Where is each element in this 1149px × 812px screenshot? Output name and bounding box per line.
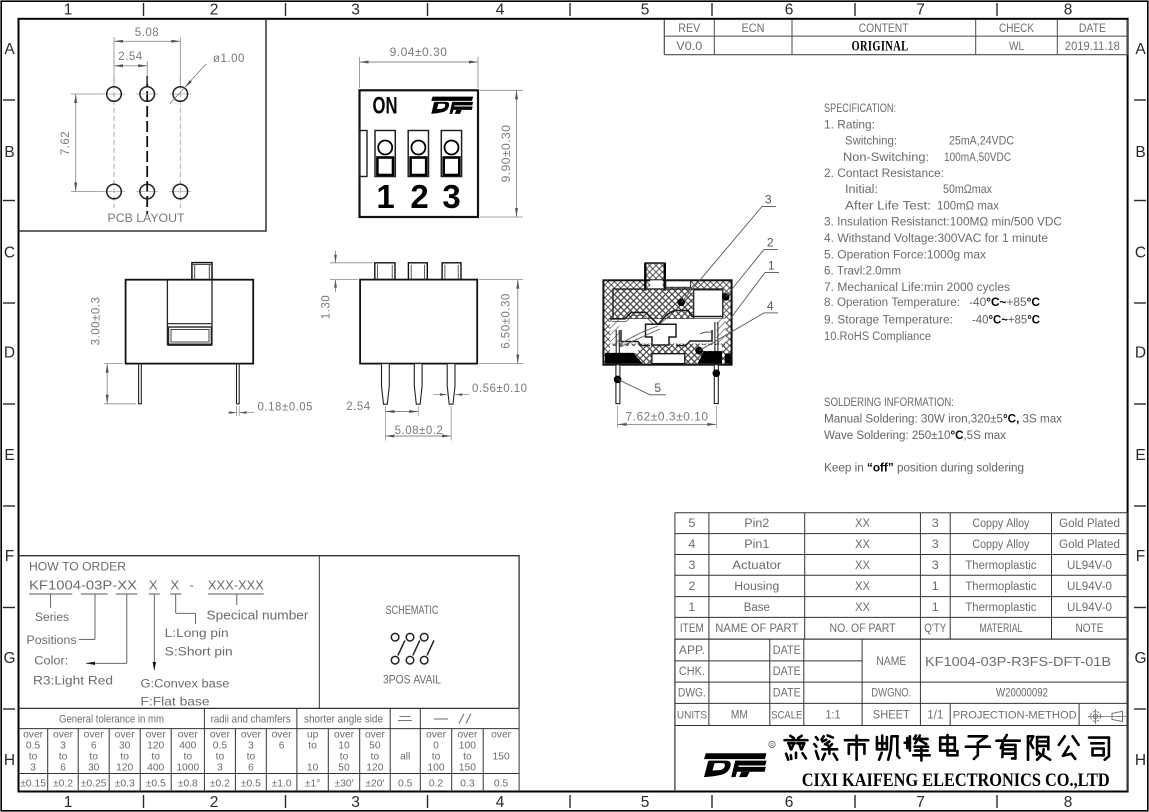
svg-text:5.08±0.2: 5.08±0.2: [395, 425, 444, 437]
svg-text:100: 100: [459, 741, 476, 752]
svg-text:Coppy Alloy: Coppy Alloy: [972, 539, 1029, 551]
svg-text:SCHEMATIC: SCHEMATIC: [386, 603, 439, 617]
svg-text:C: C: [4, 245, 15, 262]
svg-text:DATE: DATE: [773, 688, 801, 700]
svg-text:3. Insulation Resistanct:100MΩ: 3. Insulation Resistanct:100MΩ min/500 V…: [824, 215, 1062, 229]
svg-text:1: 1: [376, 178, 394, 215]
svg-text:4: 4: [688, 539, 696, 551]
svg-text:to: to: [59, 752, 68, 763]
svg-text:4: 4: [767, 299, 774, 313]
svg-text:±30′: ±30′: [334, 779, 353, 790]
svg-text:Actuator: Actuator: [732, 560, 781, 572]
svg-text:Gold Plated: Gold Plated: [1059, 539, 1120, 551]
svg-text:1: 1: [932, 581, 939, 593]
svg-text:Thermoplastic: Thermoplastic: [965, 602, 1036, 614]
svg-text:5.08: 5.08: [135, 27, 159, 39]
svg-text:General tolerance in mm: General tolerance in mm: [59, 714, 164, 726]
svg-text:to: to: [340, 752, 349, 763]
svg-text:CIXI KAIFENG ELECTRONICS CO.,L: CIXI KAIFENG ELECTRONICS CO.,LTD: [802, 770, 1110, 791]
svg-text:3: 3: [248, 741, 254, 752]
svg-text:over: over: [53, 730, 74, 741]
svg-text:6.50±0.30: 6.50±0.30: [501, 293, 513, 349]
svg-text:to: to: [371, 752, 380, 763]
svg-text:4: 4: [496, 794, 505, 811]
svg-text:Positions: Positions: [27, 633, 77, 647]
svg-text:to: to: [151, 752, 160, 763]
svg-text:10.RoHS Compliance: 10.RoHS Compliance: [824, 329, 931, 343]
svg-text:H: H: [1135, 752, 1146, 769]
svg-text:UL94V-0: UL94V-0: [1067, 560, 1112, 572]
svg-text:Pin2: Pin2: [744, 518, 769, 530]
svg-text:Thermoplastic: Thermoplastic: [965, 560, 1036, 572]
svg-text:over: over: [426, 730, 447, 741]
svg-text:Housing: Housing: [734, 581, 779, 593]
svg-text:Wave Soldering: 250±10°C,5S ma: Wave Soldering: 250±10°C,5S max: [824, 428, 1006, 442]
svg-text:After Life Test:: After Life Test:: [845, 198, 931, 212]
svg-text:to: to: [308, 741, 317, 752]
svg-text:MM: MM: [731, 710, 748, 722]
svg-text:0.2: 0.2: [429, 779, 444, 790]
svg-text:3: 3: [351, 794, 360, 811]
svg-text:C: C: [1135, 245, 1146, 262]
svg-text:6: 6: [785, 794, 794, 811]
svg-text:UL94V-0: UL94V-0: [1067, 602, 1112, 614]
svg-text:to: to: [432, 752, 441, 763]
svg-text:CONTENT: CONTENT: [859, 21, 910, 35]
svg-text:E: E: [4, 447, 14, 464]
svg-text:10: 10: [307, 763, 319, 774]
svg-text:6: 6: [279, 741, 285, 752]
svg-text:6: 6: [91, 741, 97, 752]
svg-text:KF1004-03P-XX: KF1004-03P-XX: [29, 578, 137, 593]
svg-text:5: 5: [688, 518, 695, 530]
svg-text:0.3: 0.3: [460, 779, 475, 790]
svg-text:9. Storage Temperature:: 9. Storage Temperature:: [824, 312, 953, 326]
svg-text:E: E: [1135, 447, 1145, 464]
svg-text:3.00±0.3: 3.00±0.3: [91, 297, 103, 346]
svg-text:over: over: [115, 730, 136, 741]
svg-text:UNITS: UNITS: [677, 710, 707, 722]
svg-text:to: to: [463, 752, 472, 763]
svg-text:W20000092: W20000092: [996, 686, 1048, 700]
svg-text:XX: XX: [855, 602, 870, 614]
svg-text:3: 3: [60, 741, 66, 752]
svg-text:3: 3: [765, 193, 772, 207]
svg-text:±0.2: ±0.2: [210, 779, 230, 790]
svg-text:6: 6: [60, 763, 66, 774]
svg-text:8: 8: [1064, 2, 1073, 19]
svg-text:3: 3: [688, 560, 695, 572]
svg-text:±0.5: ±0.5: [146, 779, 166, 790]
svg-text:over: over: [146, 730, 167, 741]
svg-text:over: over: [178, 730, 199, 741]
svg-text:Initial:: Initial:: [845, 182, 878, 196]
svg-text:±1°: ±1°: [305, 779, 321, 790]
svg-text:50mΩmax: 50mΩmax: [943, 182, 992, 196]
svg-text:ø1.00: ø1.00: [213, 53, 245, 65]
svg-text:REV: REV: [678, 21, 700, 35]
svg-text:over: over: [272, 730, 293, 741]
svg-text:shorter angle side: shorter angle side: [304, 714, 383, 726]
svg-text:UL94V-0: UL94V-0: [1067, 581, 1112, 593]
svg-text:radii and chamfers: radii and chamfers: [211, 714, 291, 726]
svg-text:4. Withstand Voltage:300VAC fo: 4. Withstand Voltage:300VAC for 1 minute: [824, 231, 1048, 245]
svg-text:D: D: [4, 345, 15, 362]
svg-text:over: over: [210, 730, 231, 741]
svg-text:10: 10: [338, 741, 350, 752]
svg-text:F: F: [5, 548, 14, 565]
svg-text:6. Travl:2.0mm: 6. Travl:2.0mm: [824, 264, 901, 278]
svg-text:-40°C~+85°C: -40°C~+85°C: [972, 312, 1040, 326]
svg-text:100mA,50VDC: 100mA,50VDC: [944, 150, 1011, 164]
svg-text:to: to: [120, 752, 129, 763]
svg-text:3: 3: [932, 539, 939, 551]
svg-text:3: 3: [30, 763, 36, 774]
svg-text:100: 100: [427, 763, 444, 774]
svg-text:3: 3: [442, 178, 460, 215]
svg-text:NOTE: NOTE: [1076, 623, 1104, 635]
svg-text:ORIGINAL: ORIGINAL: [852, 39, 909, 55]
svg-text:H: H: [4, 752, 15, 769]
svg-text:V0.0: V0.0: [676, 39, 702, 53]
svg-text:R: R: [770, 743, 774, 749]
svg-text:30: 30: [88, 763, 100, 774]
svg-text:3: 3: [351, 2, 360, 19]
svg-text:0.18±0.05: 0.18±0.05: [258, 402, 314, 414]
svg-text:1: 1: [932, 602, 939, 614]
svg-text:-40°C~+85°C: -40°C~+85°C: [969, 295, 1040, 309]
svg-text:1: 1: [64, 794, 73, 811]
svg-text:over: over: [84, 730, 105, 741]
svg-text:D: D: [1135, 345, 1146, 362]
svg-text:5: 5: [641, 2, 650, 19]
svg-text:F:Flat base: F:Flat base: [141, 695, 210, 709]
svg-text:G: G: [3, 650, 15, 667]
svg-text:7.62±0.3±0.10: 7.62±0.3±0.10: [625, 410, 708, 424]
svg-text:6: 6: [248, 763, 254, 774]
svg-text:7: 7: [916, 794, 925, 811]
svg-text:up: up: [307, 730, 319, 741]
svg-text:1: 1: [768, 259, 775, 273]
svg-text:1000: 1000: [176, 763, 199, 774]
svg-text:±0.8: ±0.8: [178, 779, 198, 790]
svg-text:A: A: [1135, 41, 1146, 58]
svg-text:Series: Series: [35, 610, 69, 624]
svg-text:L:Long pin: L:Long pin: [165, 626, 229, 640]
svg-text:8: 8: [1064, 794, 1073, 811]
svg-text:over: over: [457, 730, 478, 741]
svg-text:4: 4: [496, 2, 505, 19]
svg-text:8. Operation Temperature:: 8. Operation Temperature:: [824, 295, 960, 309]
svg-text:Switching:: Switching:: [845, 134, 897, 148]
svg-text:DATE: DATE: [773, 645, 801, 657]
svg-text:120: 120: [147, 741, 164, 752]
svg-text:2: 2: [210, 794, 219, 811]
svg-text:NO. OF PART: NO. OF PART: [830, 623, 896, 635]
svg-text:2: 2: [767, 236, 774, 250]
svg-text:DWGNO.: DWGNO.: [871, 688, 911, 700]
svg-text:±0.5: ±0.5: [241, 779, 261, 790]
svg-text:to: to: [247, 752, 256, 763]
svg-text:Manual Soldering: 30W iron,320: Manual Soldering: 30W iron,320±5°C, 3S m…: [824, 412, 1062, 426]
svg-text:CHECK: CHECK: [999, 21, 1034, 35]
svg-text:±0.2: ±0.2: [53, 779, 73, 790]
svg-text:±0.15: ±0.15: [20, 779, 46, 790]
svg-text:2: 2: [410, 178, 428, 215]
svg-text:5. Operation Force:1000g max: 5. Operation Force:1000g max: [824, 247, 986, 261]
svg-text:±0.25: ±0.25: [81, 779, 107, 790]
svg-text:CHK.: CHK.: [679, 666, 705, 678]
svg-text:to: to: [29, 752, 38, 763]
svg-text:±0.3: ±0.3: [115, 779, 135, 790]
svg-text:7: 7: [916, 2, 925, 19]
svg-text:X: X: [149, 578, 158, 593]
svg-text:3: 3: [932, 560, 939, 572]
svg-text:150: 150: [459, 763, 476, 774]
svg-text:2: 2: [688, 581, 695, 593]
svg-text:B: B: [1135, 144, 1145, 161]
svg-text:50: 50: [369, 741, 381, 752]
svg-text:B: B: [4, 144, 14, 161]
svg-text:0.5: 0.5: [494, 779, 509, 790]
svg-text:5: 5: [641, 794, 650, 811]
svg-text:SCALE: SCALE: [771, 710, 802, 722]
svg-text:over: over: [334, 730, 355, 741]
svg-text:NAME OF PART: NAME OF PART: [715, 623, 798, 635]
svg-text:0.5: 0.5: [213, 741, 228, 752]
svg-text:SOLDERING INFORMATION:: SOLDERING INFORMATION:: [824, 395, 954, 409]
svg-text:400: 400: [147, 763, 164, 774]
svg-text:±20′: ±20′: [365, 779, 384, 790]
svg-text:ECN: ECN: [742, 21, 765, 35]
svg-text:400: 400: [179, 741, 196, 752]
svg-text:XX: XX: [855, 581, 870, 593]
svg-text:DATE: DATE: [1079, 21, 1106, 35]
svg-text:SHEET: SHEET: [873, 710, 910, 722]
svg-text:NAME: NAME: [876, 654, 906, 668]
svg-text:X: X: [170, 578, 179, 593]
svg-text:2019.11.18: 2019.11.18: [1065, 39, 1120, 53]
svg-text:XX: XX: [855, 560, 870, 572]
svg-text:Q'TY: Q'TY: [924, 623, 946, 635]
svg-text:Gold Plated: Gold Plated: [1059, 518, 1120, 530]
svg-text:A: A: [4, 41, 15, 58]
svg-text:6: 6: [785, 2, 794, 19]
svg-text:WL: WL: [1009, 39, 1024, 53]
svg-text:Color:: Color:: [34, 654, 68, 668]
svg-text:ON: ON: [373, 93, 398, 120]
svg-text:XX: XX: [855, 518, 870, 530]
svg-text:Thermoplastic: Thermoplastic: [965, 581, 1036, 593]
svg-text:120: 120: [116, 763, 133, 774]
svg-text:Coppy Alloy: Coppy Alloy: [972, 518, 1029, 530]
svg-text:5: 5: [654, 381, 661, 395]
svg-text:DATE: DATE: [773, 666, 801, 678]
svg-text:DWG.: DWG.: [678, 688, 706, 700]
svg-text:1/1: 1/1: [927, 710, 943, 722]
svg-text:1: 1: [64, 2, 73, 19]
svg-text:MATERIAL: MATERIAL: [979, 623, 1022, 635]
svg-text:to: to: [89, 752, 98, 763]
svg-text:3: 3: [217, 763, 223, 774]
svg-text:1:1: 1:1: [826, 710, 841, 722]
svg-text:0.56±0.10: 0.56±0.10: [472, 383, 528, 395]
svg-text:PCB LAYOUT: PCB LAYOUT: [108, 213, 185, 225]
svg-text:1. Rating:: 1. Rating:: [824, 117, 875, 131]
svg-text:S:Short pin: S:Short pin: [165, 645, 233, 659]
svg-text:25mA,24VDC: 25mA,24VDC: [949, 134, 1014, 148]
svg-text:Specical number: Specical number: [207, 608, 310, 623]
svg-text:100mΩ max: 100mΩ max: [937, 198, 999, 212]
svg-text:30: 30: [119, 741, 131, 752]
svg-text:over: over: [241, 730, 262, 741]
svg-text:XX: XX: [855, 539, 870, 551]
svg-text:to: to: [184, 752, 193, 763]
svg-text:3: 3: [932, 518, 939, 530]
svg-text:50: 50: [338, 763, 350, 774]
svg-text:HOW TO ORDER: HOW TO ORDER: [29, 560, 126, 574]
svg-text:APP.: APP.: [679, 645, 705, 657]
svg-text:1.30: 1.30: [321, 295, 333, 319]
svg-text:0.5: 0.5: [26, 741, 41, 752]
svg-text:over: over: [491, 730, 512, 741]
svg-text:9.90±0.30: 9.90±0.30: [499, 125, 513, 183]
svg-text:KF1004-03P-R3FS-DFT-01B: KF1004-03P-R3FS-DFT-01B: [925, 654, 1111, 669]
svg-text:2: 2: [210, 2, 219, 19]
svg-text:Keep in “off” position during: Keep in “off” position during soldering: [824, 461, 1024, 475]
svg-text:ITEM: ITEM: [680, 623, 704, 635]
svg-text:3POS AVAIL: 3POS AVAIL: [383, 673, 441, 687]
svg-text:2.54: 2.54: [346, 401, 370, 413]
svg-text:R3:Light Red: R3:Light Red: [33, 674, 113, 688]
svg-text:150: 150: [493, 752, 510, 763]
svg-text:Base: Base: [744, 602, 770, 614]
svg-text:±1.0: ±1.0: [272, 779, 292, 790]
svg-text:120: 120: [366, 763, 383, 774]
svg-text:F: F: [1136, 548, 1145, 565]
svg-text:G:Convex base: G:Convex base: [141, 677, 230, 691]
svg-text:all: all: [400, 752, 410, 763]
svg-text:2. Contact Resistance:: 2. Contact Resistance:: [824, 166, 944, 180]
svg-text:XXX-XXX: XXX-XXX: [208, 578, 264, 593]
svg-text:over: over: [365, 730, 386, 741]
svg-text:7. Mechanical Life:min 2000 cy: 7. Mechanical Life:min 2000 cycles: [824, 280, 1010, 294]
svg-text:Pin1: Pin1: [744, 539, 769, 551]
svg-text:1: 1: [688, 602, 695, 614]
svg-text:9.04±0.30: 9.04±0.30: [390, 45, 448, 59]
svg-text:SPECIFICATION:: SPECIFICATION:: [824, 101, 896, 115]
svg-text:2.54: 2.54: [118, 51, 142, 63]
svg-text:to: to: [216, 752, 225, 763]
svg-text:PROJECTION-METHOD: PROJECTION-METHOD: [953, 710, 1077, 722]
svg-text:G: G: [1134, 650, 1146, 667]
svg-text:7.62: 7.62: [60, 131, 72, 155]
svg-text:Non-Switching:: Non-Switching:: [843, 150, 929, 164]
svg-text:0: 0: [433, 741, 439, 752]
svg-text:-: -: [190, 578, 195, 593]
svg-text:over: over: [23, 730, 44, 741]
svg-text:0.5: 0.5: [398, 779, 413, 790]
